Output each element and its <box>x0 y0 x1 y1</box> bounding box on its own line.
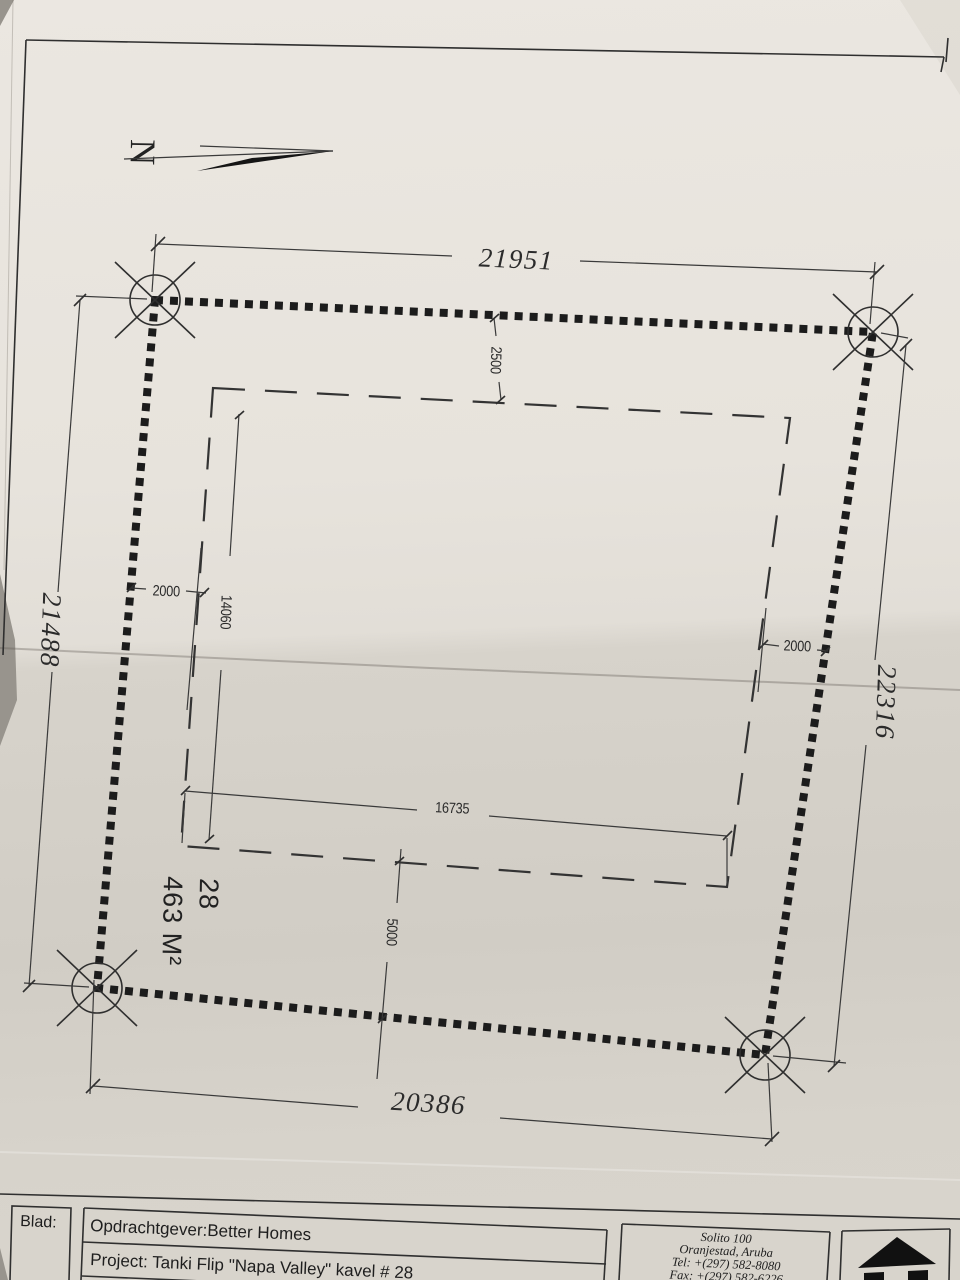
plot-area-label: 463 M² <box>156 876 188 967</box>
dimension-top-label: 21951 <box>478 242 554 275</box>
setback-bottom-label: 5000 <box>383 918 401 946</box>
setback-left-offset-label: 2000 <box>152 581 181 599</box>
blad-label: Blad: <box>20 1213 57 1232</box>
north-label: N <box>123 139 163 166</box>
paper-sheet <box>0 0 960 1280</box>
setback-width-label: 16735 <box>435 798 470 817</box>
site-plan-drawing: N 2195 <box>0 0 960 1280</box>
photographed-site-plan: N 2195 <box>0 0 960 1280</box>
dimension-bottom-label: 20386 <box>390 1086 467 1121</box>
plot-number-label: 28 <box>193 878 224 911</box>
dimension-right-label: 22316 <box>870 664 903 740</box>
setback-height-label: 14060 <box>217 595 235 630</box>
dimension-left-label: 21488 <box>35 592 68 668</box>
setback-top-label: 2500 <box>487 346 505 374</box>
setback-right-offset-label: 2000 <box>783 636 812 654</box>
